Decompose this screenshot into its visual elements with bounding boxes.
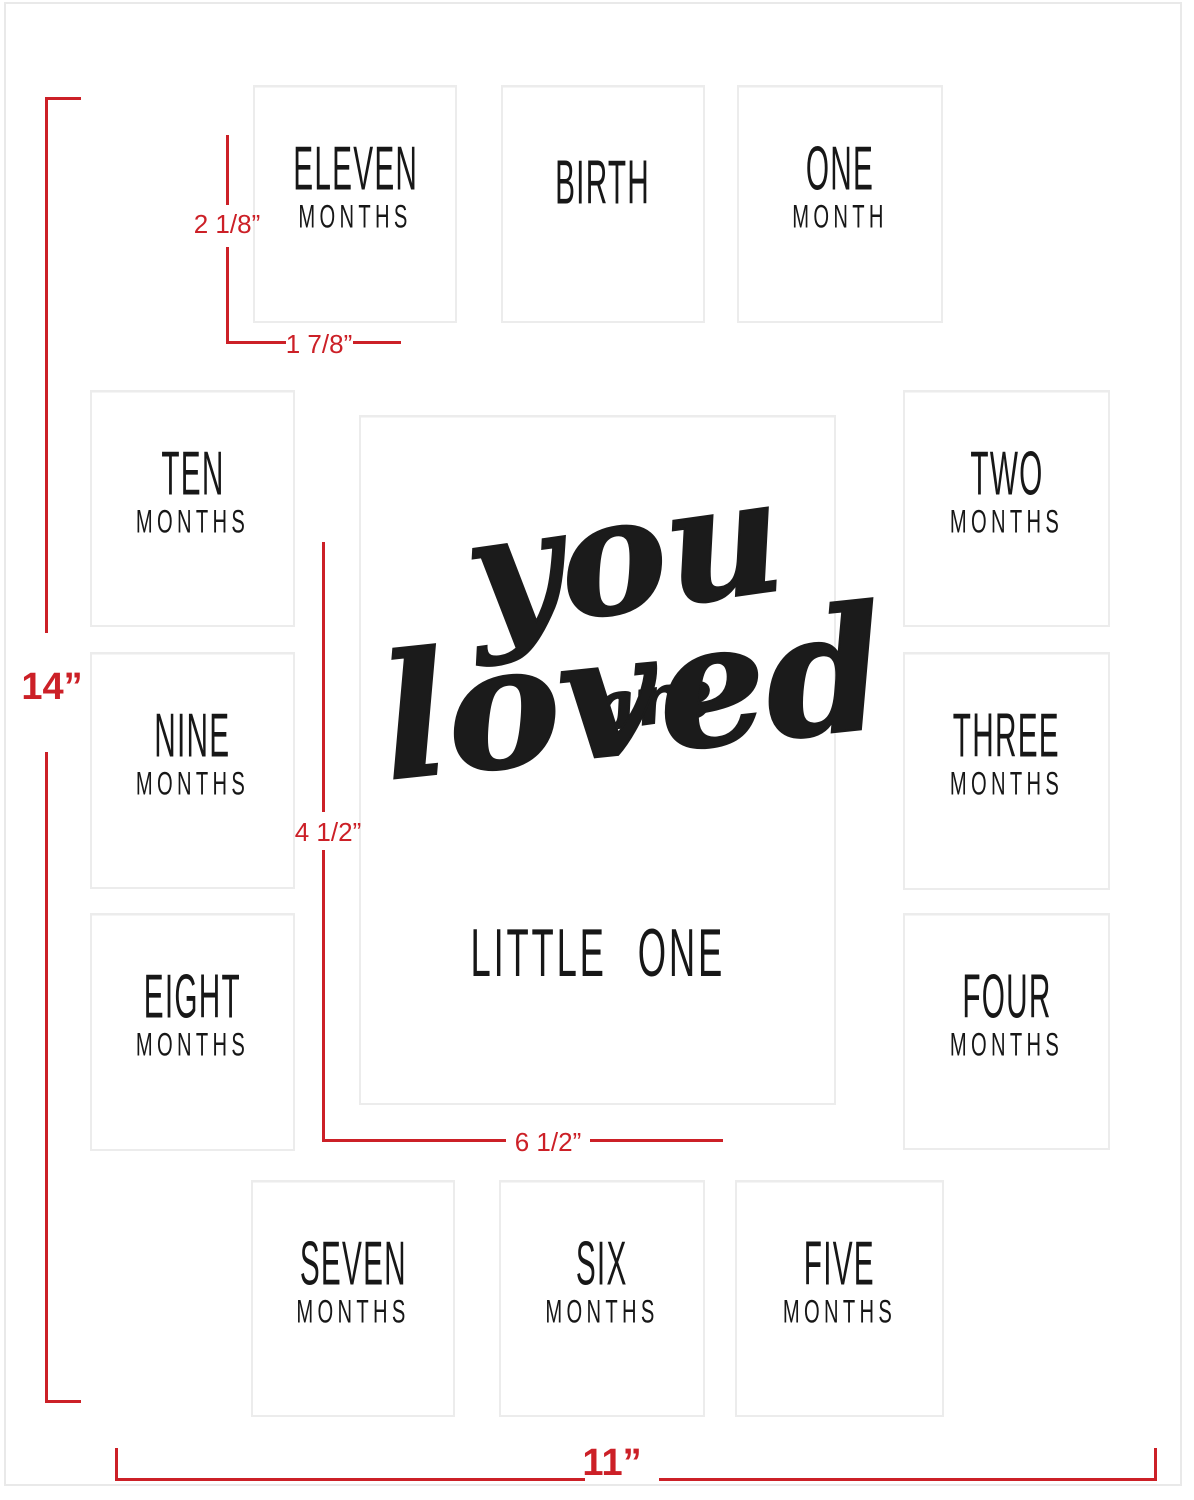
opening-subtitle: MONTHS xyxy=(933,1029,1079,1061)
opening-subtitle: MONTHS xyxy=(766,1296,914,1328)
artwork-script-loved: loved xyxy=(373,583,892,805)
opening-subtitle: MONTH xyxy=(767,201,912,233)
dim-line xyxy=(45,752,48,1402)
opening-four-months: FOUR MONTHS xyxy=(903,913,1110,1150)
opening-title: NINE xyxy=(154,706,230,768)
opening-subtitle: MONTHS xyxy=(120,1029,265,1061)
opening-title: TEN xyxy=(161,444,224,506)
opening-title: TWO xyxy=(970,444,1043,506)
dim-label-small-width: 1 7/8” xyxy=(283,331,355,357)
dim-line xyxy=(226,247,229,343)
opening-eleven-months: ELEVEN MONTHS xyxy=(253,85,457,323)
opening-subtitle: MONTHS xyxy=(933,768,1079,800)
dim-label-small-height: 2 1/8” xyxy=(158,211,296,237)
opening-title: FOUR xyxy=(962,967,1051,1029)
opening-title: ELEVEN xyxy=(293,139,418,201)
dim-line xyxy=(115,1448,118,1481)
dim-line xyxy=(45,97,48,633)
opening-subtitle: MONTHS xyxy=(933,506,1079,538)
dim-line xyxy=(322,1139,506,1142)
dim-label-center-height: 4 1/2” xyxy=(288,819,368,845)
opening-title: SIX xyxy=(576,1234,628,1296)
artwork-subtitle-text: LITTLE ONE xyxy=(470,915,725,993)
opening-subtitle: MONTHS xyxy=(120,768,265,800)
opening-title: BIRTH xyxy=(556,153,651,215)
opening-birth: BIRTH xyxy=(501,85,705,323)
opening-title: ONE xyxy=(806,139,874,201)
opening-six-months: SIX MONTHS xyxy=(499,1180,705,1417)
opening-title: EIGHT xyxy=(144,967,241,1029)
dim-label-mat-width: 11” xyxy=(576,1444,648,1482)
artwork-subtitle: LITTLE ONE xyxy=(361,915,834,975)
opening-title: SEVEN xyxy=(299,1234,406,1296)
dim-line xyxy=(1154,1448,1157,1481)
opening-subtitle: MONTHS xyxy=(529,1296,674,1328)
opening-five-months: FIVE MONTHS xyxy=(735,1180,944,1417)
dim-line xyxy=(659,1478,1157,1481)
dim-line xyxy=(322,850,325,1142)
opening-nine-months: NINE MONTHS xyxy=(90,652,295,889)
milestone-mat-diagram: ELEVEN MONTHS BIRTH ONE MONTH TEN MONTHS… xyxy=(0,0,1194,1500)
dim-line xyxy=(45,1400,81,1403)
opening-title: FIVE xyxy=(804,1234,875,1296)
dim-line xyxy=(322,542,325,812)
opening-one-month: ONE MONTH xyxy=(737,85,943,323)
dim-line xyxy=(226,135,229,205)
dim-line xyxy=(45,97,81,100)
opening-two-months: TWO MONTHS xyxy=(903,390,1110,627)
opening-subtitle: MONTHS xyxy=(281,1296,425,1328)
opening-subtitle: MONTHS xyxy=(120,506,265,538)
dim-label-mat-height: 14” xyxy=(12,668,92,706)
opening-eight-months: EIGHT MONTHS xyxy=(90,913,295,1151)
dim-line xyxy=(115,1478,585,1481)
opening-subtitle: MONTHS xyxy=(283,201,427,233)
opening-ten-months: TEN MONTHS xyxy=(90,390,295,627)
dim-line xyxy=(226,341,286,344)
center-opening-artwork: you are loved LITTLE ONE xyxy=(359,415,836,1105)
dim-line xyxy=(353,341,401,344)
opening-three-months: THREE MONTHS xyxy=(903,652,1110,890)
opening-title: THREE xyxy=(953,706,1060,768)
opening-seven-months: SEVEN MONTHS xyxy=(251,1180,455,1417)
dim-label-center-width: 6 1/2” xyxy=(508,1129,588,1155)
dim-line xyxy=(590,1139,723,1142)
